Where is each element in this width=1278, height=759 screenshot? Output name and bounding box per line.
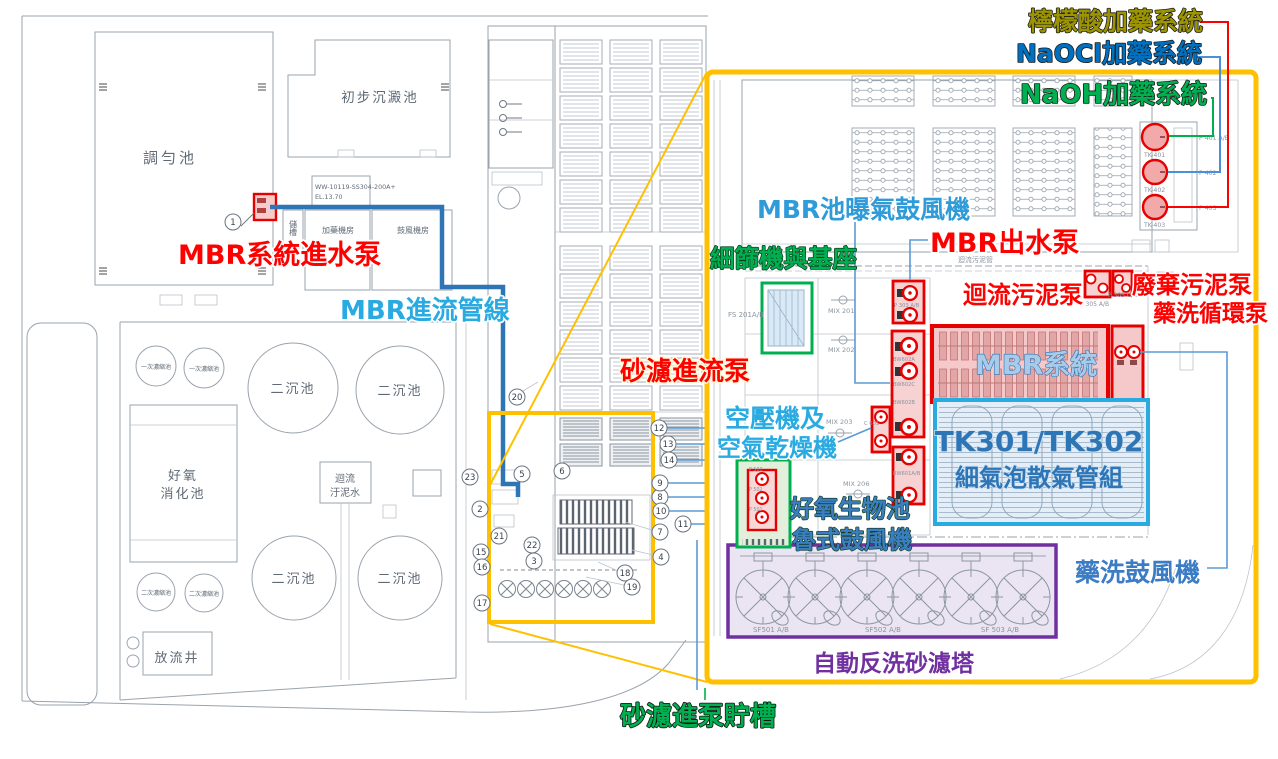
callout-12: 12 (651, 420, 667, 436)
callout-4: 4 (653, 549, 669, 565)
cip-blower-label: 藥洗鼓風機 (1074, 558, 1200, 587)
primary-sedimentation-tank: 初步沉澱池 (288, 40, 450, 157)
callout-3: 3 (526, 553, 542, 569)
p303-label: P 303 A/B (894, 303, 920, 309)
p305ab-label: P 305 A/B (1080, 301, 1109, 308)
naocl-dosing-label: NaOCl加藥系統 (1016, 39, 1202, 68)
primary-thickener-label: 一次濃縮池 (141, 363, 171, 371)
callout-23: 23 (462, 469, 478, 485)
svg-text:18: 18 (620, 569, 631, 579)
svg-text:11: 11 (678, 520, 689, 530)
site-plan: 調勻池 初步沉澱池 WW-10119-SS304-200A+ EL.13.70 … (22, 16, 708, 712)
sf501-label: SF501 A/B (753, 626, 789, 634)
callout-11: 11 (675, 516, 691, 532)
callout-18: 18 (617, 565, 633, 581)
mbr-feed-pump-label: MBR系統進水泵 (178, 239, 381, 271)
secondary-thickener-label: 二次濃縮池 (141, 589, 171, 597)
svg-text:19: 19 (627, 583, 638, 593)
mbr-aeration-blower-box: BW602A BW602C BW602B (892, 331, 924, 437)
svg-text:8: 8 (657, 493, 662, 503)
cip-circulation-pump-label: 藥洗循環泵 (1152, 300, 1268, 327)
tk-diffuser-box (935, 400, 1148, 524)
svg-text:15: 15 (476, 548, 487, 558)
blower-room-label: 鼓風機房 (397, 225, 429, 235)
fs-screen-label: FS 201A/B (728, 311, 764, 319)
svg-text:21: 21 (494, 532, 505, 542)
svg-text:6: 6 (559, 467, 564, 477)
callout-21: 21 (491, 528, 507, 544)
mbr-aeration-blower-label: MBR池曝氣鼓風機 (757, 195, 970, 224)
callout-15: 15 (473, 544, 489, 560)
callout-2: 2 (472, 501, 488, 517)
return-sludge-pump-label: 迴流污泥泵 (963, 281, 1083, 309)
svg-text:5: 5 (519, 470, 524, 480)
aerobic-blower-label-1: 好氧生物池 (789, 495, 910, 523)
auto-backwash-sand-filter-box: SF501 A/B SF502 A/B SF 503 A/B (728, 545, 1056, 637)
callout-10: 10 (653, 503, 669, 519)
auto-backwash-sand-filter-label: 自動反洗砂濾塔 (813, 650, 975, 677)
svg-text:3: 3 (531, 557, 536, 567)
equalization-tank-label: 調勻池 (143, 149, 197, 167)
air-compressor-label-1: 空壓機及 (725, 404, 825, 433)
tk402-label: TK-402 (1143, 187, 1165, 194)
tk401-label: TK-401 (1143, 152, 1165, 159)
sand-filter-feed-pump-label: 砂濾進流泵 (620, 357, 750, 387)
secondary-clarifier-label: 二沉池 (270, 382, 315, 397)
dosing-room-label: 加藥機房 (322, 225, 354, 235)
bw602c-label: BW602C (893, 382, 915, 388)
pipe-spec-line1: WW-10119-SS304-200A+ (315, 184, 396, 191)
callout-19: 19 (624, 579, 640, 595)
storage-tank-label: 儲槽 (289, 219, 298, 237)
sf503-label: SF 503 A/B (981, 626, 1019, 634)
primary-sedimentation-label: 初步沉澱池 (341, 89, 419, 106)
cip-circulation-pump-box (1112, 326, 1143, 402)
secondary-clarifier-label: 二沉池 (377, 572, 422, 587)
svg-text:10: 10 (656, 507, 667, 517)
callout-6: 6 (554, 463, 570, 479)
svg-text:1: 1 (230, 218, 235, 228)
outfall-well-label: 放流井 (154, 651, 199, 666)
callout-17: 17 (474, 595, 490, 611)
svg-text:14: 14 (664, 456, 675, 466)
mix203-label: MIX 203 (826, 418, 852, 426)
svg-text:17: 17 (477, 599, 488, 609)
aeration-hall-panels (560, 40, 702, 466)
callout-1: 1 (225, 214, 241, 230)
aerobic-digester-label-2: 消化池 (160, 487, 205, 502)
air-compressor-label-2: 空氣乾燥機 (717, 434, 837, 462)
callout-20: 20 (509, 389, 525, 405)
mix206-label: MIX 206 (843, 480, 869, 488)
mix202-label: MIX 202 (828, 346, 854, 354)
west-wing (489, 40, 553, 209)
sf502-label: SF502 A/B (865, 626, 901, 634)
plant-layout-diagram: 調勻池 初步沉澱池 WW-10119-SS304-200A+ EL.13.70 … (0, 0, 1278, 759)
citric-acid-dosing-label: 檸檬酸加藥系統 (1028, 7, 1203, 36)
svg-text:13: 13 (663, 440, 674, 450)
secondary-thickener-label: 二次濃縮池 (189, 590, 219, 598)
callout-16: 16 (474, 559, 490, 575)
south-plant-block: 一次濃縮池 一次濃縮池 二沉池 二沉池 二沉池 二沉池 好氧 消化池 迴流 汙泥… (120, 322, 456, 700)
mbr-system-label: MBR系統 (975, 349, 1097, 381)
pipe-spec-line2: EL.13.70 (315, 194, 343, 201)
p502-label: P 502 (749, 487, 763, 493)
pipe-spec-box: WW-10119-SS304-200A+ EL.13.70 (312, 176, 396, 206)
svg-text:7: 7 (657, 528, 662, 538)
bw601-label: BW601A/B (893, 471, 921, 477)
bw602a-label: BW602A (893, 357, 915, 363)
aerobic-digester-label-1: 好氧 (168, 469, 198, 484)
waste-sludge-pump-label: 廢棄污泥泵 (1132, 271, 1252, 299)
callout-9: 9 (652, 475, 668, 491)
svg-text:4: 4 (658, 553, 663, 563)
callout-13: 13 (660, 436, 676, 452)
svg-text:23: 23 (465, 473, 476, 483)
callout-14: 14 (661, 452, 677, 468)
secondary-clarifier-label: 二沉池 (271, 572, 316, 587)
c601-label: C 601 (864, 421, 879, 427)
svg-text:9: 9 (657, 479, 662, 489)
callout-22: 22 (524, 537, 540, 553)
callout-5: 5 (514, 466, 530, 482)
return-sludge-water-label-1: 迴流 (335, 472, 355, 485)
bw602b-label: BW602B (893, 400, 915, 406)
svg-text:16: 16 (477, 563, 488, 573)
sand-filter-feed-tank-label: 砂濾進泵貯槽 (620, 701, 776, 732)
tk403-label: TK-403 (1143, 222, 1165, 229)
fine-screen-base-label: 細篩機與基座 (710, 244, 857, 273)
mbr-feed-pump-highlight (241, 194, 276, 226)
tk-tanks-label-2: 細氣泡散氣管組 (955, 464, 1123, 492)
west-strip (27, 323, 97, 705)
primary-thickener-label: 一次濃縮池 (189, 365, 219, 373)
svg-text:12: 12 (654, 424, 665, 434)
naoh-dosing-label: NaOH加藥系統 (1020, 79, 1207, 110)
svg-text:2: 2 (477, 505, 482, 515)
return-sludge-water-label-2: 汙泥水 (330, 486, 360, 499)
mbr-outlet-pump-box: P 303 A/B (893, 281, 924, 323)
mbr-inflow-pipe-label: MBR進流管線 (340, 295, 510, 326)
secondary-clarifier-label: 二沉池 (377, 384, 422, 399)
mbr-outlet-pump-label: MBR出水泵 (930, 228, 1079, 259)
svg-text:20: 20 (512, 393, 523, 403)
sand-filter-feed-pump-box: P 503 P 502 P 501 (737, 460, 790, 547)
p501-label: P 501 (749, 507, 763, 513)
mix201-label: MIX 201 (828, 307, 854, 315)
tk-tanks-label-1: TK301/TK302 (935, 425, 1144, 458)
svg-text:22: 22 (527, 541, 538, 551)
p503-label: P 503 (749, 467, 763, 473)
plant-layout-screenshot: 調勻池 初步沉澱池 WW-10119-SS304-200A+ EL.13.70 … (0, 0, 1278, 759)
central-building (488, 26, 706, 642)
aerobic-blower-label-2: 魯式鼓風機 (792, 526, 912, 554)
callout-7: 7 (652, 524, 668, 540)
